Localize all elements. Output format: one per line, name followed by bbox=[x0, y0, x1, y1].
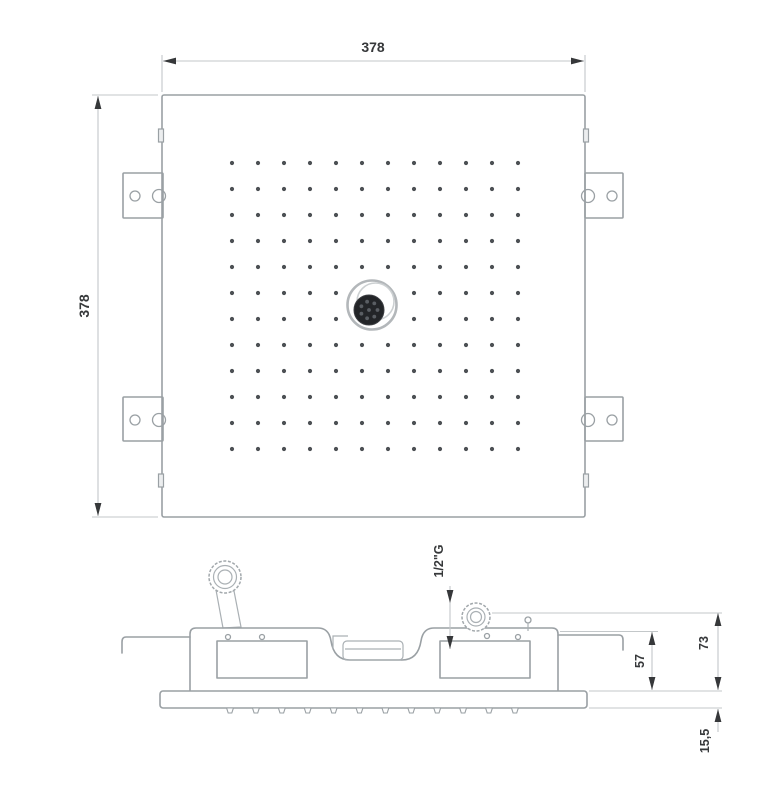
nozzle-dot bbox=[360, 343, 364, 347]
nozzle-dot bbox=[282, 213, 286, 217]
side-nozzle bbox=[253, 708, 260, 713]
mounting-bracket-bottom-right bbox=[582, 397, 624, 441]
nozzle-dot bbox=[412, 291, 416, 295]
side-nozzle bbox=[330, 708, 337, 713]
nozzle-dot bbox=[386, 239, 390, 243]
nozzle-dot bbox=[438, 447, 442, 451]
nozzle-dot bbox=[516, 239, 520, 243]
nozzle-dot bbox=[282, 187, 286, 191]
screw-head bbox=[516, 635, 521, 640]
nozzle-dot bbox=[282, 421, 286, 425]
side-nozzle bbox=[278, 708, 285, 713]
nozzle-dot bbox=[516, 213, 520, 217]
nozzle-dot bbox=[490, 395, 494, 399]
nozzle-dot bbox=[464, 213, 468, 217]
side-nozzle bbox=[460, 708, 467, 713]
nozzle-dot bbox=[386, 343, 390, 347]
nozzle-dot bbox=[412, 187, 416, 191]
nozzle-dot bbox=[464, 265, 468, 269]
nozzle-dot bbox=[256, 161, 260, 165]
arrowhead-icon bbox=[163, 58, 176, 65]
nozzle-dot bbox=[490, 447, 494, 451]
screw-head bbox=[260, 635, 265, 640]
side-view: 1/2"G 57 73 15,5 bbox=[122, 544, 722, 753]
nozzle-dot bbox=[438, 213, 442, 217]
nozzle-dot bbox=[386, 213, 390, 217]
nozzle-dot bbox=[412, 317, 416, 321]
nozzle-dot bbox=[516, 421, 520, 425]
nozzle-dot bbox=[282, 291, 286, 295]
nozzle-dot bbox=[308, 213, 312, 217]
nozzle-dot bbox=[464, 343, 468, 347]
nozzle-dot bbox=[516, 187, 520, 191]
nozzle-dot bbox=[334, 239, 338, 243]
mounting-bracket-bottom-left bbox=[123, 397, 166, 441]
nozzle-dot bbox=[412, 395, 416, 399]
nozzle-dot bbox=[256, 447, 260, 451]
mounting-bracket-top-left bbox=[123, 173, 166, 218]
nozzle-dot bbox=[282, 161, 286, 165]
nozzle-dot bbox=[308, 395, 312, 399]
nozzle-dot bbox=[490, 161, 494, 165]
inlet-callout: 1/2"G bbox=[432, 544, 453, 649]
side-nozzle bbox=[512, 708, 519, 713]
nozzle-dot bbox=[464, 291, 468, 295]
nozzle-dot bbox=[360, 187, 364, 191]
top-view: 378 378 bbox=[76, 39, 623, 517]
nozzle-dot bbox=[256, 213, 260, 217]
nozzle-dot bbox=[230, 447, 234, 451]
side-nozzle bbox=[434, 708, 441, 713]
nozzle-dot bbox=[308, 369, 312, 373]
nozzle-dot bbox=[464, 161, 468, 165]
nozzle-dot bbox=[490, 343, 494, 347]
nozzle-dot bbox=[282, 395, 286, 399]
arrowhead-icon bbox=[571, 58, 584, 65]
nozzle-dot bbox=[360, 239, 364, 243]
nozzle-dot bbox=[464, 369, 468, 373]
nozzle-dot bbox=[256, 239, 260, 243]
nozzle-dot bbox=[334, 213, 338, 217]
dim-label-frame-depth: 57 bbox=[633, 654, 647, 668]
nozzle-dot bbox=[412, 421, 416, 425]
technical-drawing-page: 378 378 bbox=[0, 0, 767, 800]
nozzle-dot bbox=[516, 343, 520, 347]
nozzle-dot bbox=[308, 265, 312, 269]
inlet-label: 1/2"G bbox=[432, 544, 446, 577]
edge-slot bbox=[584, 129, 589, 142]
inlet-recess bbox=[333, 636, 403, 660]
nozzle-dot bbox=[438, 161, 442, 165]
nozzle-dot bbox=[282, 369, 286, 373]
edge-slot bbox=[159, 474, 164, 487]
side-nozzle bbox=[356, 708, 363, 713]
nozzle-dot bbox=[282, 447, 286, 451]
nozzle-dot bbox=[464, 395, 468, 399]
nozzle-dot bbox=[334, 265, 338, 269]
nozzle-dot bbox=[308, 161, 312, 165]
nozzle-dot bbox=[516, 291, 520, 295]
nozzle-dot bbox=[256, 291, 260, 295]
nozzle-dot bbox=[334, 291, 338, 295]
nozzle-dot bbox=[282, 343, 286, 347]
bottom-plate bbox=[160, 691, 587, 708]
nozzle-dot bbox=[360, 265, 364, 269]
nozzle-dot bbox=[490, 369, 494, 373]
nozzle-dot bbox=[412, 447, 416, 451]
nozzle-dot bbox=[438, 265, 442, 269]
body-frame-outline bbox=[190, 628, 558, 697]
nozzle-dot bbox=[308, 187, 312, 191]
nozzle-dot bbox=[490, 213, 494, 217]
edge-slot bbox=[159, 129, 164, 142]
nozzle-dot bbox=[230, 291, 234, 295]
nozzle-dot bbox=[386, 421, 390, 425]
inner-box-left bbox=[217, 641, 307, 678]
nozzle-dot bbox=[386, 395, 390, 399]
nozzle-dot bbox=[464, 447, 468, 451]
dim-label-flange-thickness: 15,5 bbox=[698, 729, 712, 753]
nozzle-dot bbox=[438, 395, 442, 399]
nozzle-dot bbox=[490, 317, 494, 321]
nozzle-dot bbox=[412, 343, 416, 347]
nozzle-dot bbox=[490, 421, 494, 425]
nozzle-dot bbox=[360, 369, 364, 373]
nozzle-dot bbox=[516, 317, 520, 321]
nozzle-dot bbox=[438, 317, 442, 321]
screw-head bbox=[226, 635, 231, 640]
nozzle-dot bbox=[386, 187, 390, 191]
nozzle-dot bbox=[230, 421, 234, 425]
nozzle-dot bbox=[490, 187, 494, 191]
side-nozzle bbox=[227, 708, 234, 713]
nozzle-dot bbox=[516, 265, 520, 269]
side-nozzle bbox=[408, 708, 415, 713]
arrowhead-icon bbox=[715, 677, 722, 690]
nozzle-dot bbox=[256, 317, 260, 321]
nozzle-dot bbox=[438, 343, 442, 347]
nozzle-dot bbox=[256, 343, 260, 347]
nozzle-dot bbox=[464, 421, 468, 425]
nozzle-dot bbox=[256, 421, 260, 425]
nozzle-dot bbox=[412, 239, 416, 243]
arrowhead-icon bbox=[715, 613, 722, 626]
nozzle-dot bbox=[230, 213, 234, 217]
nozzle-dot bbox=[438, 239, 442, 243]
mounting-bracket-top-right bbox=[582, 173, 624, 218]
nozzle-dot bbox=[360, 395, 364, 399]
nozzle-dot bbox=[412, 265, 416, 269]
nozzle-dot bbox=[464, 317, 468, 321]
inner-box-right bbox=[440, 641, 530, 678]
nozzle-dot bbox=[334, 421, 338, 425]
side-nozzle bbox=[304, 708, 311, 713]
nozzle-dot bbox=[360, 421, 364, 425]
nozzle-dot bbox=[256, 369, 260, 373]
bleed-pin bbox=[525, 617, 531, 631]
arrowhead-icon bbox=[95, 96, 102, 109]
nozzle-dot bbox=[386, 265, 390, 269]
nozzle-dot bbox=[230, 239, 234, 243]
nozzle-dot bbox=[282, 317, 286, 321]
dim-flange-thickness: 15,5 bbox=[698, 709, 721, 753]
nozzle-dot bbox=[516, 447, 520, 451]
center-spray-fitting bbox=[348, 281, 397, 330]
inlet-union-nut bbox=[462, 603, 490, 631]
nozzle-dot bbox=[256, 265, 260, 269]
nozzle-dot bbox=[230, 343, 234, 347]
nozzle-dot bbox=[516, 395, 520, 399]
side-nozzle bbox=[486, 708, 493, 713]
arrowhead-icon bbox=[649, 677, 656, 690]
nozzle-dot bbox=[464, 187, 468, 191]
nozzle-dot bbox=[334, 161, 338, 165]
nozzle-dot bbox=[516, 161, 520, 165]
nozzle-dot bbox=[412, 213, 416, 217]
side-nozzle bbox=[382, 708, 389, 713]
nozzle-dot bbox=[386, 447, 390, 451]
nozzle-dot bbox=[256, 395, 260, 399]
nozzle-dot bbox=[334, 343, 338, 347]
nozzle-dot bbox=[230, 187, 234, 191]
screw-head bbox=[485, 634, 490, 639]
nozzle-dot bbox=[308, 343, 312, 347]
nozzle-dot bbox=[334, 187, 338, 191]
arrowhead-icon bbox=[447, 590, 454, 603]
dim-label-width: 378 bbox=[361, 39, 385, 55]
edge-slot bbox=[584, 474, 589, 487]
nozzle-dot bbox=[308, 239, 312, 243]
nozzle-dot bbox=[256, 187, 260, 191]
nozzle-dot bbox=[230, 369, 234, 373]
nozzle-dot bbox=[490, 239, 494, 243]
nozzle-dot bbox=[438, 369, 442, 373]
nozzle-dot bbox=[334, 395, 338, 399]
dim-label-height: 378 bbox=[76, 294, 92, 318]
nozzle-dot bbox=[308, 447, 312, 451]
nozzle-dot bbox=[334, 447, 338, 451]
nozzle-dot bbox=[360, 213, 364, 217]
arrowhead-icon bbox=[715, 709, 722, 722]
dim-total-depth: 73 bbox=[697, 613, 721, 690]
swivel-joint bbox=[209, 561, 241, 628]
nozzle-dot bbox=[230, 317, 234, 321]
nozzle-dot bbox=[464, 239, 468, 243]
nozzle-dot bbox=[334, 317, 338, 321]
dim-label-total-depth: 73 bbox=[697, 636, 711, 650]
arrowhead-icon bbox=[447, 636, 454, 649]
nozzle-dot bbox=[334, 369, 338, 373]
arrowhead-icon bbox=[649, 632, 656, 645]
nozzle-dot bbox=[308, 421, 312, 425]
nozzle-dot bbox=[282, 239, 286, 243]
nozzle-dot bbox=[516, 369, 520, 373]
nozzle-dot bbox=[360, 161, 364, 165]
dim-frame-depth: 57 bbox=[633, 632, 655, 690]
nozzle-dot bbox=[438, 421, 442, 425]
nozzle-dot bbox=[490, 265, 494, 269]
nozzle-dot bbox=[230, 265, 234, 269]
spring-clip-left bbox=[122, 637, 190, 653]
nozzle-dot bbox=[230, 161, 234, 165]
nozzle-dot bbox=[386, 369, 390, 373]
nozzle-dot bbox=[412, 369, 416, 373]
spring-clip-right bbox=[558, 635, 623, 650]
nozzle-dot bbox=[386, 161, 390, 165]
nozzle-dot bbox=[438, 291, 442, 295]
nozzle-dot bbox=[308, 317, 312, 321]
nozzle-dot bbox=[360, 447, 364, 451]
nozzle-dot bbox=[308, 291, 312, 295]
nozzle-dot bbox=[230, 395, 234, 399]
nozzle-dot bbox=[438, 187, 442, 191]
nozzle-dot bbox=[412, 161, 416, 165]
shower-head-drawing: 378 378 bbox=[0, 0, 767, 800]
arrowhead-icon bbox=[95, 503, 102, 516]
nozzle-dot bbox=[282, 265, 286, 269]
nozzle-dot bbox=[490, 291, 494, 295]
